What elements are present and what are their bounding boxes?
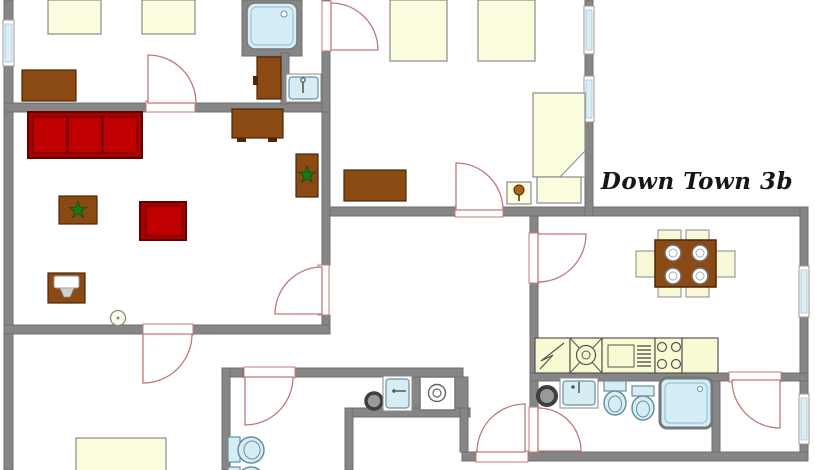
sink-faucet-dot	[392, 389, 396, 393]
wall-smallbath-top-right	[295, 368, 463, 377]
wall-dining-left-upper	[530, 216, 538, 234]
sideboard	[232, 109, 283, 138]
wall-bedroom2-bottom	[330, 207, 455, 216]
sofa-cushion	[68, 117, 102, 153]
wall-bedroom1-bottom-left	[4, 103, 146, 112]
window-glass	[801, 398, 807, 440]
sink-basin	[386, 379, 409, 408]
plan-title: Down Town 3b	[592, 168, 802, 198]
floor-drain	[538, 387, 556, 405]
wall-kitchen-divider-right	[780, 373, 808, 381]
door-swing-living-south	[143, 334, 192, 383]
shower-tray	[247, 3, 297, 49]
door-swing-bath-top	[331, 3, 378, 50]
wall-dining-top	[503, 207, 808, 216]
floor-drain	[366, 393, 382, 409]
window-glass	[801, 270, 807, 313]
shower-tray	[660, 378, 712, 428]
plate	[692, 245, 708, 261]
floor-plan: Down Town 3b	[0, 0, 815, 470]
toilet-bowl	[632, 396, 654, 420]
wardrobe	[257, 57, 281, 99]
wall-left-outer	[4, 0, 13, 470]
sideboard-foot	[237, 138, 246, 142]
bed	[390, 0, 447, 61]
bed	[76, 438, 166, 470]
shower-drain	[698, 387, 703, 392]
bed	[478, 0, 535, 61]
floor-lamp-dot	[117, 317, 120, 320]
sofa-cushion	[33, 117, 67, 153]
toilet-tank	[604, 381, 626, 391]
dresser	[22, 70, 76, 101]
bed	[142, 0, 195, 34]
plate	[665, 268, 681, 284]
door-swing-wc-room	[732, 380, 780, 428]
toilet-bowl	[604, 391, 626, 415]
wardrobe-handle	[253, 76, 258, 85]
shower-drain	[281, 11, 287, 17]
lamp	[514, 185, 524, 195]
plate	[665, 245, 681, 261]
window-glass	[586, 80, 592, 118]
door-frame	[322, 1, 331, 51]
wall-living-right-upper	[322, 112, 330, 265]
dining-chair	[636, 251, 655, 277]
washing-machine	[420, 377, 455, 410]
door-swing-living-east	[275, 267, 322, 314]
bed	[48, 0, 101, 34]
sink-faucet-dot	[571, 385, 575, 389]
door-swing-smallbath	[245, 377, 293, 425]
tv-body	[54, 276, 79, 288]
door-swing-dining	[538, 234, 586, 282]
kitchen-unit-worktop	[602, 338, 655, 373]
dining-chair	[716, 251, 735, 277]
door-swing-bathroom	[538, 408, 581, 451]
wall-entry-left	[460, 408, 468, 452]
window-glass	[586, 10, 592, 50]
kitchen-unit-counter	[682, 338, 718, 373]
floor-plan-drawing	[0, 0, 815, 470]
wall-living-bottom-right	[192, 325, 330, 334]
armchair-seat	[146, 206, 182, 236]
wall-smallbath-inner-vertical	[345, 408, 353, 470]
wall-bath-top-right	[322, 50, 330, 112]
plate	[692, 268, 708, 284]
door-swing-entry	[477, 404, 525, 452]
sideboard-foot	[268, 138, 277, 142]
door-swing-bedroom1	[148, 55, 196, 103]
window-glass	[5, 24, 12, 62]
chest	[537, 177, 581, 203]
toilet-tank	[632, 386, 654, 396]
wall-living-bottom-left	[4, 325, 143, 334]
desk	[344, 170, 406, 201]
door-swing-bedroom2	[456, 163, 503, 210]
sink-bowl	[577, 346, 596, 365]
sofa-cushion	[103, 117, 137, 153]
